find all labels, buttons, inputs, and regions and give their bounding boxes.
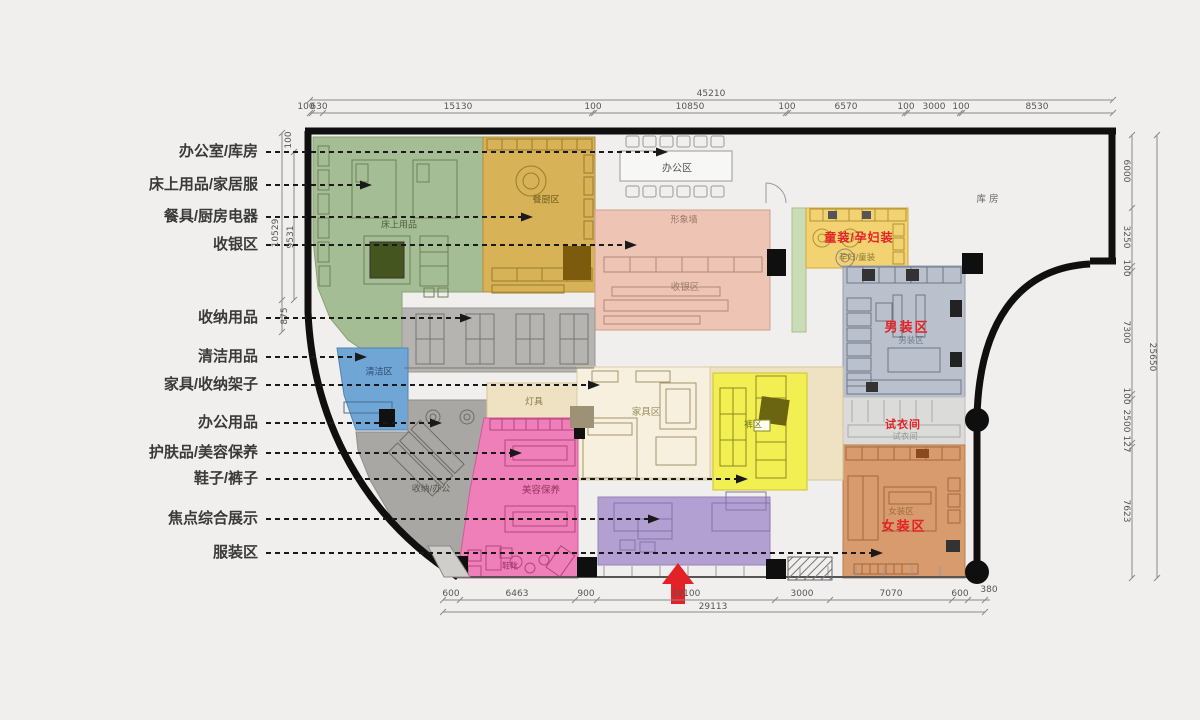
legend-item-cleaning: 清洁用品 (60, 348, 258, 366)
zone-label-image-wall: 形象墙 (670, 213, 697, 226)
dim-bottom-seg-3: 10100 (672, 589, 701, 599)
dim-right-seg-5: 2500 (1121, 410, 1131, 433)
column-interior (767, 249, 786, 276)
dim-left-val-0: 100 (284, 131, 294, 148)
legend-item-focus-display: 焦点综合展示 (60, 510, 258, 528)
dim-bottom-seg-7: 380 (980, 585, 997, 595)
column-square-right (962, 253, 983, 274)
zone-sublabel-mens: 男装区 (898, 334, 924, 346)
zone-sublabel-fitting: 试衣间 (892, 430, 918, 442)
wall-curved (977, 264, 1090, 568)
zone-label-cleaning: 清洁区 (365, 365, 392, 378)
zone-sublabel-kids: 孕妇/童装 (839, 251, 875, 263)
dim-top-seg-8: 3000 (923, 102, 946, 112)
legend-item-furniture: 家具/收纳架子 (60, 376, 258, 394)
dim-left-val-1: 10529 (271, 219, 281, 248)
column-round-mid (965, 408, 989, 432)
dim-top-seg-3: 100 (584, 102, 601, 112)
dim-right-seg-2: 100 (1121, 259, 1131, 276)
dim-right-seg-6: 127 (1121, 435, 1131, 452)
dim-top-seg-9: 100 (952, 102, 969, 112)
dim-top-seg-10: 8530 (1026, 102, 1049, 112)
legend-item-office-storage: 办公室/库房 (60, 143, 258, 161)
zone-label-mens: 男装区 (884, 317, 929, 336)
zone-label-pants: 裤区 (744, 418, 762, 431)
legend-item-office-supplies: 办公用品 (60, 414, 258, 432)
dim-right-seg-4: 100 (1121, 387, 1131, 404)
dim-right-seg-3: 7300 (1121, 321, 1131, 344)
dim-right-seg-0: 6000 (1121, 160, 1131, 183)
column-round-bottom (965, 560, 989, 584)
zone-label-bedding: 床上用品 (381, 218, 417, 231)
dim-top-seg-6: 6570 (835, 102, 858, 112)
zone-label-lighting: 灯具 (525, 395, 543, 408)
zone-label-beauty: 美容保养 (522, 482, 560, 496)
zone-cleaning (337, 348, 408, 430)
dim-bottom-seg-4: 3000 (791, 589, 814, 599)
dim-top-seg-5: 100 (778, 102, 795, 112)
legend-item-clothing: 服装区 (60, 544, 258, 562)
zone-sublabel-beauty-shoes: 鞋靴 (502, 561, 518, 572)
dim-top-seg-4: 10850 (676, 102, 705, 112)
legend-item-storage-goods: 收纳用品 (60, 309, 258, 327)
zone-label-cashier: 收银区 (671, 279, 700, 293)
dim-bottom-seg-0: 600 (442, 589, 459, 599)
dim-bottom-seg-1: 6463 (506, 589, 529, 599)
zone-kids-strip (792, 208, 806, 332)
dim-bottom-seg-6: 600 (951, 589, 968, 599)
dim-top-seg-2: 15130 (444, 102, 473, 112)
zone-label-storage-room: 库房 (976, 191, 1001, 205)
dim-top-total: 45210 (697, 89, 726, 99)
dim-right-seg-7: 7623 (1121, 500, 1131, 523)
zone-label-office: 办公区 (662, 160, 692, 175)
dim-right-seg-1: 3250 (1121, 226, 1131, 249)
legend-item-shoes-pants: 鞋子/裤子 (60, 470, 258, 488)
hatched-wall-piece (788, 557, 832, 580)
dim-left-val-3: 875 (280, 307, 290, 324)
legend-item-cashier: 收银区 (60, 236, 258, 254)
zone-label-kids: 童装/孕妇装 (824, 229, 893, 246)
dim-bottom-total: 29113 (699, 602, 728, 612)
zone-label-storage-office: 收纳/办公 (412, 482, 451, 495)
dim-bottom-seg-5: 7070 (880, 589, 903, 599)
legend-item-skincare: 护肤品/美容保养 (60, 444, 258, 462)
zone-label-furniture: 家具区 (632, 404, 661, 418)
column-bottom-3 (766, 559, 786, 579)
furniture-office (620, 136, 786, 203)
legend-item-tableware: 餐具/厨房电器 (60, 208, 258, 226)
column-bottom-2 (577, 557, 597, 577)
legend-item-bedding: 床上用品/家居服 (60, 176, 258, 194)
zone-label-womens: 女装区 (881, 516, 926, 535)
dim-top-seg-7: 100 (897, 102, 914, 112)
dim-top-seg-1: 630 (310, 102, 327, 112)
zone-label-kitchen: 餐厨区 (532, 193, 559, 206)
floor-plan-canvas: 办公室/库房 床上用品/家居服 餐具/厨房电器 收银区 收纳用品 清洁用品 家具… (0, 0, 1200, 720)
dim-bottom-seg-2: 900 (577, 589, 594, 599)
dim-left-val-2: 9531 (286, 226, 296, 249)
dim-right-total: 25650 (1147, 343, 1157, 372)
